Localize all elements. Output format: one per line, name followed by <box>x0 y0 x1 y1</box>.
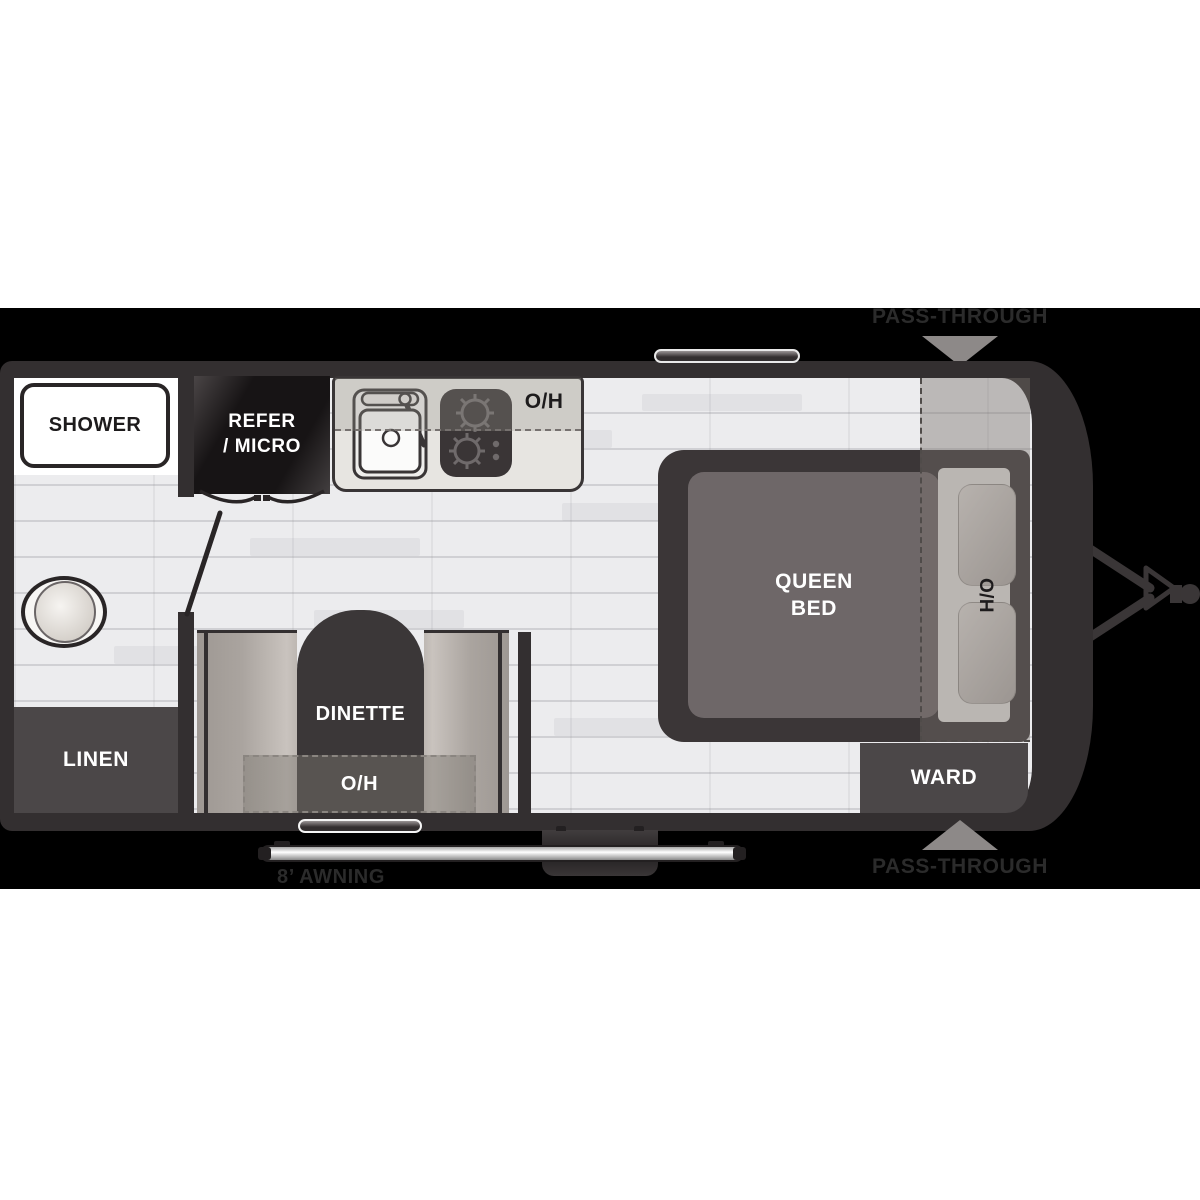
top-window-icon <box>654 349 800 363</box>
dinette-overhead-zone: O/H <box>243 755 476 813</box>
refer-vent-icon <box>194 489 330 511</box>
refer-micro-label-line1: REFER <box>228 410 295 435</box>
pass-through-arrow-up-icon <box>922 820 998 850</box>
headboard-overhead-label-wrap: H/O <box>953 553 1023 637</box>
bathroom-wall-lower <box>178 612 194 813</box>
linen-label: LINEN <box>63 748 129 772</box>
step-hinge-icon <box>634 826 644 831</box>
floor-plank <box>250 538 420 556</box>
floorplan-canvas: PASS-THROUGH SHOWER LINEN <box>0 0 1200 1200</box>
awning-end-cap-icon <box>258 847 271 860</box>
queen-bed-label-line1: QUEEN <box>775 568 853 595</box>
dinette-overhead-label: O/H <box>341 773 378 796</box>
refer-micro-cabinet: REFER / MICRO <box>194 376 330 494</box>
dinette-side-wall <box>518 632 531 813</box>
floor-plank <box>642 394 802 411</box>
bench-back-line <box>498 633 502 813</box>
dinette-label: DINETTE <box>297 703 424 726</box>
queen-bed-label-line2: BED <box>791 595 837 622</box>
linen-cabinet: LINEN <box>14 707 178 813</box>
pass-through-label-top: PASS-THROUGH <box>810 305 1110 329</box>
awning-label: 8’ AWNING <box>226 866 436 889</box>
pass-through-label-bottom: PASS-THROUGH <box>810 855 1110 879</box>
queen-bed-mattress: QUEEN BED <box>688 472 940 718</box>
awning-rail-icon <box>260 845 744 862</box>
bottom-window-icon <box>298 819 422 833</box>
bench-back-line <box>204 633 208 813</box>
kitchen-overhead-label: O/H <box>514 390 574 414</box>
bathroom-wall-upper <box>178 378 194 497</box>
shower-stall: SHOWER <box>20 383 170 468</box>
bathroom-door-swing-icon <box>175 505 230 620</box>
step-hinge-icon <box>556 826 566 831</box>
headboard-overhead-label: H/O <box>977 578 999 613</box>
refer-micro-label-line2: / MICRO <box>223 435 301 460</box>
awning-end-cap-icon <box>733 847 746 860</box>
toilet-bowl-icon <box>34 581 96 643</box>
ward-cabinet: WARD <box>860 743 1028 813</box>
ward-label: WARD <box>911 766 978 790</box>
shower-label: SHOWER <box>49 414 141 437</box>
